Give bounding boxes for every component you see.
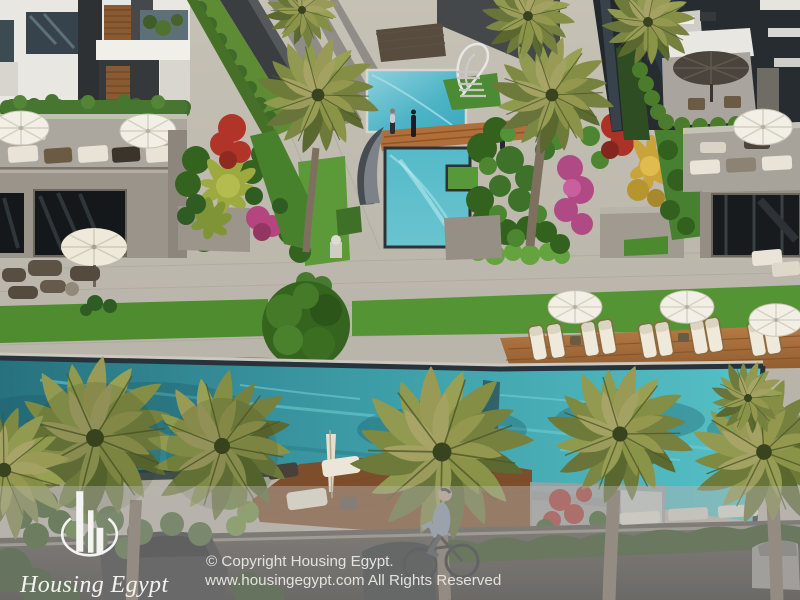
svg-text:© Copyright Housing Egypt.: © Copyright Housing Egypt. (206, 553, 394, 570)
svg-text:Housing Egypt: Housing Egypt (19, 572, 169, 598)
svg-text:www.housingegypt.com All Right: www.housingegypt.com All Rights Reserved (204, 572, 501, 589)
